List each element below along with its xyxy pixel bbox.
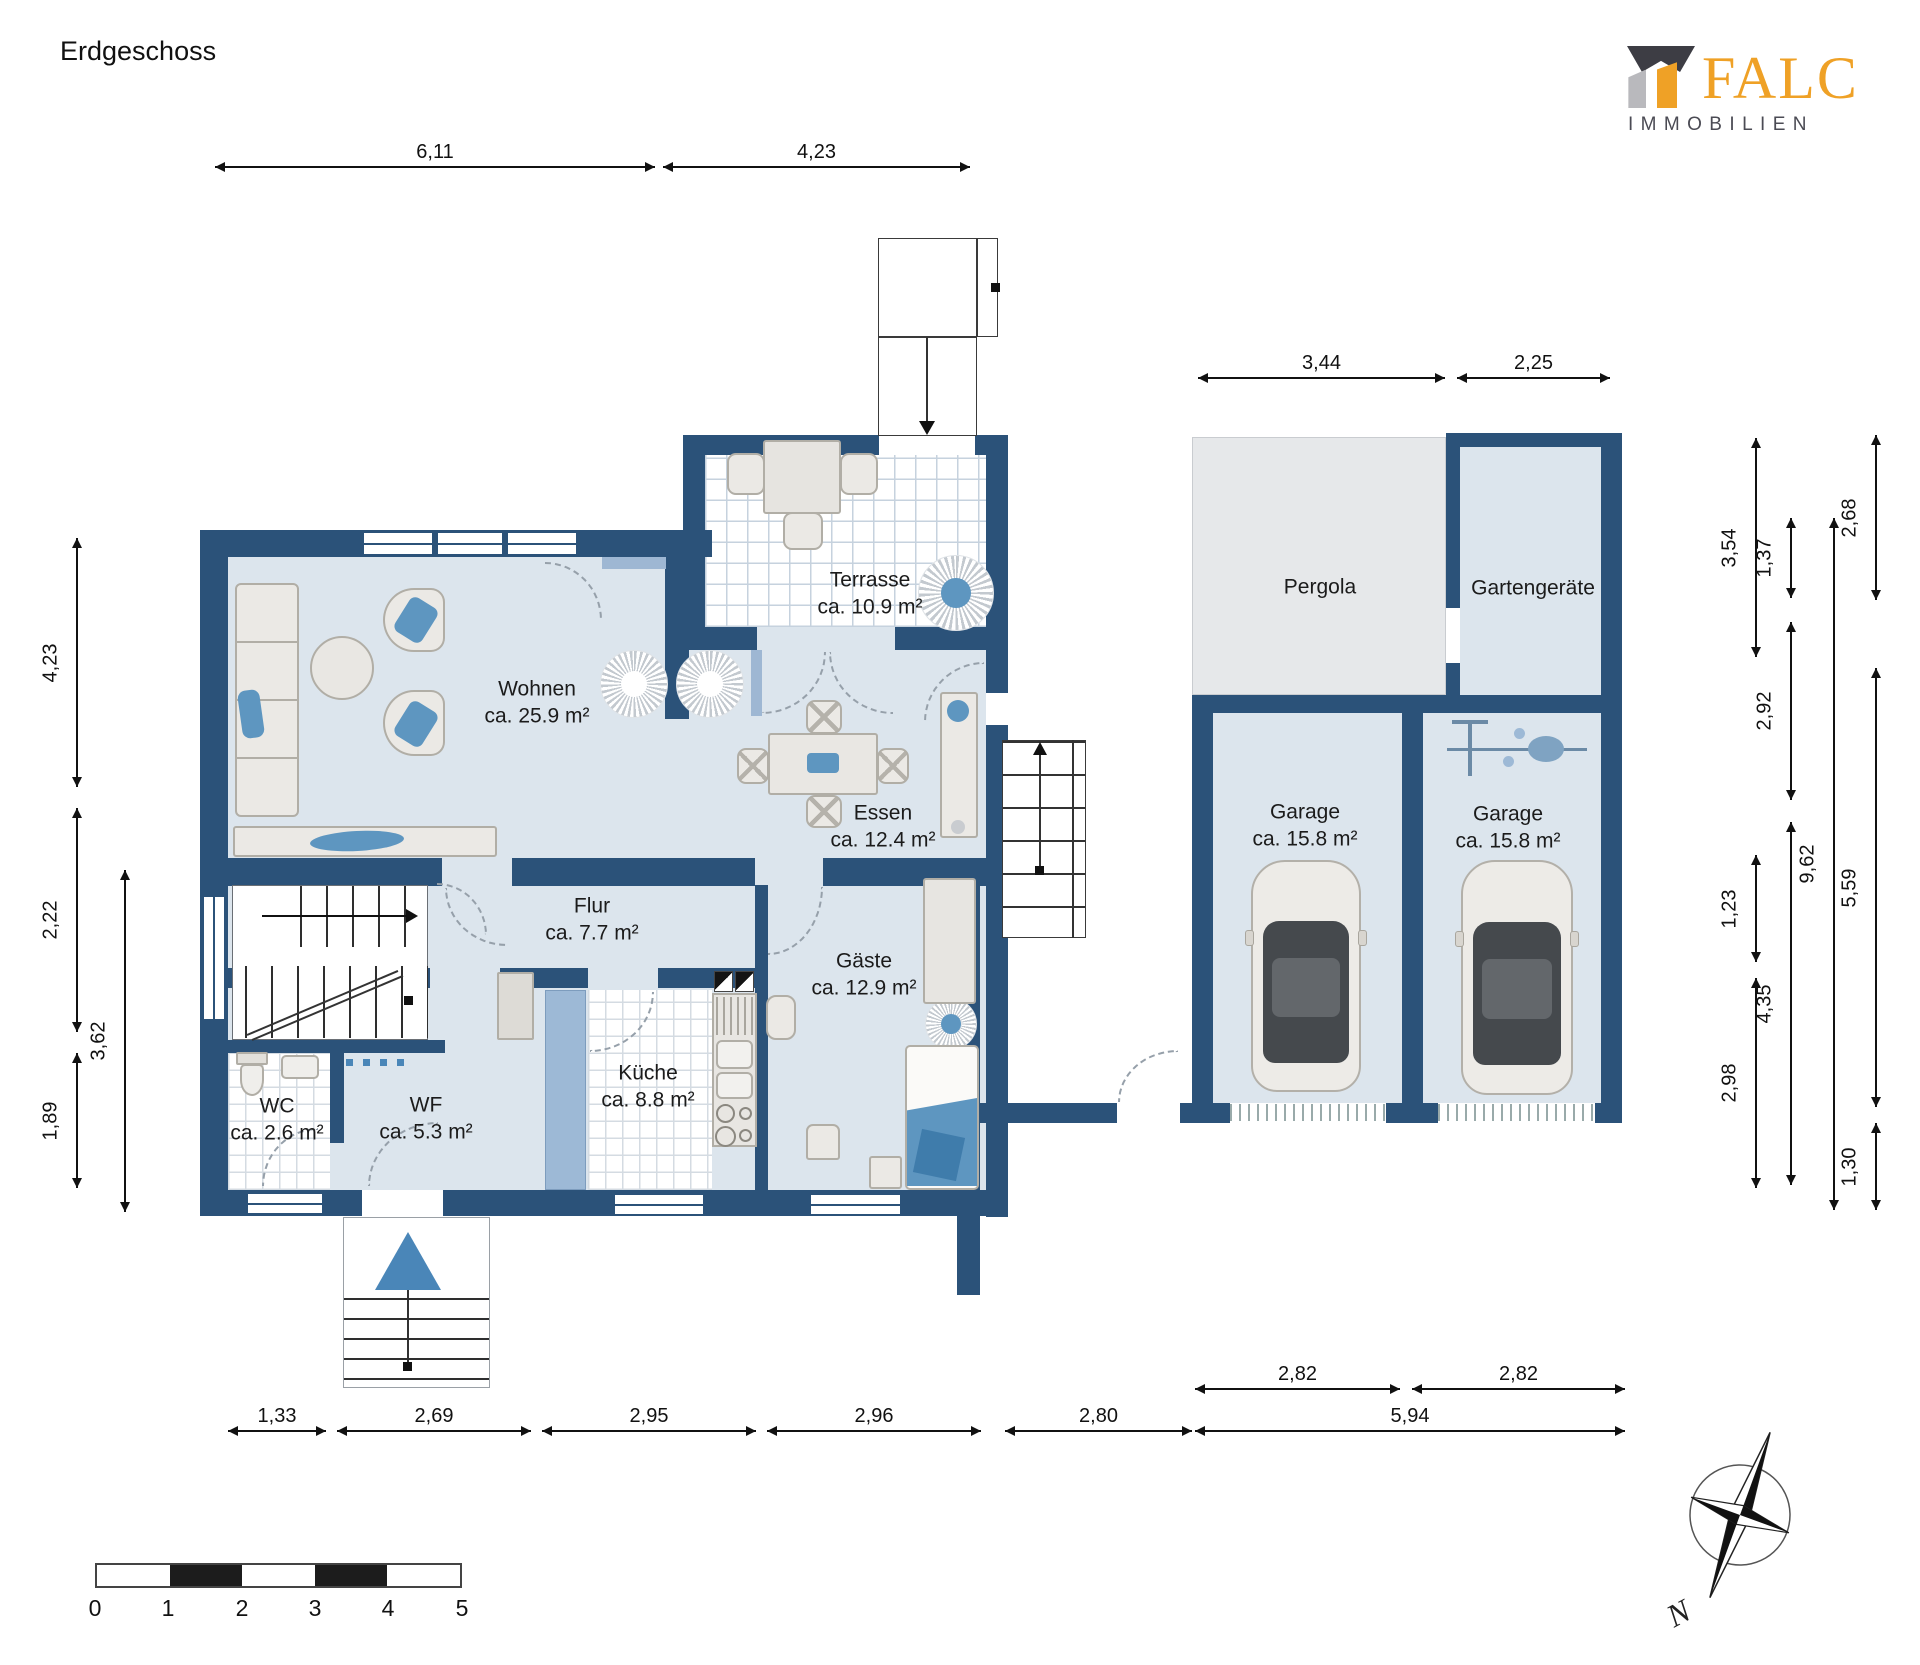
- dimension: 6,11: [215, 142, 655, 168]
- logo-gray-shape: [1628, 70, 1646, 108]
- dimension: 3,62: [100, 870, 130, 1212]
- stair-post-dot: [404, 996, 413, 1005]
- kitchen-symbol: [735, 971, 754, 992]
- wall: [986, 435, 1008, 693]
- room-area: ca. 7.7 m²: [545, 920, 638, 947]
- scale-tick: 3: [309, 1595, 322, 1622]
- dimension: 1,23: [1731, 855, 1761, 962]
- dimension: 2,69: [337, 1406, 531, 1432]
- wash-basin: [766, 995, 796, 1040]
- car: [1461, 860, 1573, 1095]
- room-label-garage2: Garage ca. 15.8 m²: [1455, 801, 1560, 856]
- wall: [200, 858, 442, 886]
- dimension: 1,30: [1851, 1123, 1881, 1210]
- dimension-label: 2,68: [1840, 498, 1860, 537]
- logo-orange-shape: [1657, 62, 1677, 108]
- dining-chair: [737, 748, 769, 784]
- garden-stairs-line: [1039, 752, 1041, 870]
- dimension-label: 1,30: [1840, 1147, 1860, 1186]
- garden-tool-knob: [1503, 756, 1514, 767]
- window: [613, 1193, 705, 1216]
- dimension-label: 4,23: [41, 643, 61, 682]
- kitchen-symbol: [714, 971, 733, 992]
- dimension: 2,96: [767, 1406, 981, 1432]
- sideboard-flower: [951, 820, 965, 834]
- dining-chair: [806, 700, 842, 734]
- garage1-door: [1230, 1104, 1386, 1121]
- terrace-table: [763, 440, 841, 514]
- wardrobe: [923, 878, 976, 1004]
- room-name: Gartengeräte: [1471, 574, 1595, 601]
- window: [809, 1193, 902, 1216]
- wall: [512, 858, 755, 886]
- room-area: ca. 15.8 m²: [1455, 828, 1560, 855]
- kitchen-sink: [716, 1072, 753, 1099]
- pergola-floor: [1192, 437, 1446, 695]
- side-table: [869, 1156, 902, 1189]
- room-name: Wohnen: [484, 676, 589, 703]
- dimension: 3,44: [1198, 353, 1445, 379]
- scale-tick: 4: [382, 1595, 395, 1622]
- dimension-label: 2,22: [41, 901, 61, 940]
- dimension: 2,68: [1851, 435, 1881, 600]
- dining-chair: [877, 748, 909, 784]
- wall: [1192, 695, 1213, 1123]
- desk-chair: [806, 1124, 840, 1160]
- room-name: Essen: [830, 800, 935, 827]
- built-in-cupboard: [545, 990, 586, 1190]
- scale-tick: 0: [89, 1595, 102, 1622]
- car-roof: [1482, 959, 1551, 1019]
- dimension-line: [1198, 377, 1445, 379]
- guest-room-plant: [925, 998, 977, 1050]
- dimension-label: 2,98: [1720, 1064, 1740, 1103]
- room-name: Terrasse: [817, 567, 922, 594]
- dimension-label: 5,59: [1840, 868, 1860, 907]
- garden-stairs-dot: [1035, 866, 1044, 875]
- room-area: ca. 5.3 m²: [379, 1119, 472, 1146]
- window: [362, 531, 434, 556]
- dimension-label: 1,37: [1755, 539, 1775, 578]
- dimension-label: 5,94: [1391, 1406, 1430, 1426]
- window: [436, 531, 504, 556]
- car-mirror: [1245, 930, 1254, 946]
- dimension-label: 6,11: [416, 142, 453, 162]
- car-roof: [1272, 958, 1340, 1017]
- dimension-label: 2,80: [1079, 1406, 1118, 1426]
- dimension: 1,37: [1766, 518, 1796, 598]
- garden-stairs-up-arrow: [1033, 742, 1047, 755]
- garden-stairs-rail: [1072, 740, 1074, 938]
- room-label-wohnen: Wohnen ca. 25.9 m²: [484, 676, 589, 731]
- stair-arrow: [406, 909, 418, 923]
- scale-tick: 2: [236, 1595, 249, 1622]
- dimension-label: 3,54: [1720, 528, 1740, 567]
- falc-logo-icon: [1627, 46, 1695, 108]
- dimension-line: [215, 166, 655, 168]
- room-area: ca. 10.9 m²: [817, 594, 922, 621]
- dimension-line: [228, 1430, 326, 1432]
- dimension-line: [1412, 1388, 1625, 1390]
- plant-core: [621, 671, 647, 697]
- page-title: Erdgeschoss: [60, 36, 216, 67]
- room-name: Flur: [545, 893, 638, 920]
- dimension-label: 1,23: [1720, 889, 1740, 928]
- wall: [1386, 1103, 1438, 1123]
- dimension-label: 2,96: [855, 1406, 894, 1426]
- room-name: Pergola: [1284, 573, 1356, 600]
- garden-tool-bar: [1468, 722, 1472, 776]
- dimension: 5,59: [1851, 668, 1881, 1107]
- room-label-pergola: Pergola: [1284, 573, 1356, 600]
- terrace-plant: [918, 555, 994, 631]
- stairs-post-dot: [991, 283, 1000, 292]
- stairs-direction-line: [926, 337, 928, 425]
- entrance-dot: [403, 1362, 412, 1371]
- hall-cabinet: [497, 972, 534, 1040]
- wall: [1402, 695, 1423, 1123]
- dimension: 1,89: [52, 1053, 82, 1188]
- kitchen-sink: [716, 1040, 753, 1069]
- scale-tick: 5: [456, 1595, 469, 1622]
- garden-tool-bar: [1452, 720, 1488, 724]
- room-area: ca. 12.4 m²: [830, 827, 935, 854]
- car: [1251, 860, 1361, 1092]
- dining-table-tray: [807, 753, 839, 773]
- dimension-label: 2,25: [1514, 353, 1553, 373]
- toilet-bowl: [240, 1064, 264, 1096]
- dimension-label: 2,82: [1278, 1364, 1317, 1384]
- stove-burner: [715, 1126, 736, 1147]
- room-name: WF: [379, 1092, 472, 1119]
- drainer: [716, 997, 754, 1035]
- wall: [665, 627, 757, 650]
- logo-subtitle: IMMOBILIEN: [1628, 114, 1814, 136]
- dimension: 4,23: [663, 142, 970, 168]
- dimension: 4,23: [52, 538, 82, 787]
- dimension-line: [337, 1430, 531, 1432]
- room-name: Küche: [601, 1060, 694, 1087]
- dimension-line: [542, 1430, 756, 1432]
- terrace-chair: [783, 512, 823, 550]
- dimension-line: [663, 166, 970, 168]
- stairs-down-arrow: [919, 421, 935, 435]
- dimension-label: 4,35: [1755, 984, 1775, 1023]
- car-mirror: [1570, 931, 1579, 947]
- terrace-chair: [727, 453, 765, 495]
- room-label-gartengeraete: Gartengeräte: [1471, 574, 1595, 601]
- wall: [443, 1190, 1008, 1216]
- room-label-garage1: Garage ca. 15.8 m²: [1252, 799, 1357, 854]
- sideboard-bowl: [947, 700, 969, 722]
- dimension-line: [1195, 1430, 1625, 1432]
- plant: [676, 650, 744, 718]
- room-area: ca. 12.9 m²: [811, 975, 916, 1002]
- stair-direction-line: [262, 915, 412, 917]
- room-label-kueche: Küche ca. 8.8 m²: [601, 1060, 694, 1115]
- wall: [980, 1103, 1117, 1123]
- garden-tool-knob: [1514, 728, 1525, 739]
- window: [506, 531, 578, 556]
- room-label-wf: WF ca. 5.3 m²: [379, 1092, 472, 1147]
- dimension: 2,95: [542, 1406, 756, 1432]
- dimension-label: 1,89: [41, 1101, 61, 1140]
- room-name: Gäste: [811, 948, 916, 975]
- dimension-label: 3,44: [1302, 353, 1341, 373]
- door-leaf: [602, 557, 666, 569]
- scale-tick: 1: [162, 1595, 175, 1622]
- garage2-door: [1438, 1104, 1595, 1121]
- garden-tool-head: [1528, 736, 1564, 762]
- dimension-label: 2,69: [415, 1406, 454, 1426]
- wall: [1446, 433, 1622, 447]
- plant-core: [941, 578, 971, 608]
- dimension: 4,35: [1766, 822, 1796, 1185]
- car-mirror: [1455, 931, 1464, 947]
- coffee-table: [310, 636, 374, 700]
- room-area: ca. 2.6 m²: [230, 1120, 323, 1147]
- stove-burner: [739, 1129, 752, 1142]
- dimension-label: 2,95: [630, 1406, 669, 1426]
- dimension: 2,82: [1412, 1364, 1625, 1390]
- scale-bar-strip: [95, 1563, 462, 1588]
- room-label-essen: Essen ca. 12.4 m²: [830, 800, 935, 855]
- dimension: 2,92: [1766, 622, 1796, 800]
- plant-core: [697, 671, 723, 697]
- room-name: Garage: [1252, 799, 1357, 826]
- plant: [600, 650, 668, 718]
- stove-burner: [716, 1104, 735, 1123]
- dimension: 2,80: [1005, 1406, 1192, 1432]
- dimension: 9,62: [1809, 518, 1839, 1210]
- dimension-line: [1457, 377, 1610, 379]
- room-area: ca. 25.9 m²: [484, 703, 589, 730]
- wall: [1601, 433, 1622, 1123]
- door-swing-arc: [1118, 1050, 1178, 1102]
- wall: [1192, 1103, 1230, 1123]
- exterior-stairs-landing: [878, 238, 977, 337]
- window: [246, 1192, 324, 1215]
- dimension: 2,25: [1457, 353, 1610, 379]
- dimension-label: 2,92: [1755, 692, 1775, 731]
- sink: [281, 1055, 319, 1079]
- wall: [330, 1053, 344, 1143]
- dimension-label: 3,62: [89, 1022, 109, 1061]
- room-label-flur: Flur ca. 7.7 m²: [545, 893, 638, 948]
- stove-burner: [739, 1107, 752, 1120]
- room-label-wc: WC ca. 2.6 m²: [230, 1093, 323, 1148]
- gartengeraete-floor: [1460, 447, 1601, 695]
- room-name: Garage: [1455, 801, 1560, 828]
- terrace-chair: [840, 453, 878, 495]
- coat-hooks: [346, 1059, 414, 1066]
- dimension: 1,33: [228, 1406, 326, 1432]
- room-name: WC: [230, 1093, 323, 1120]
- dimension-label: 2,82: [1499, 1364, 1538, 1384]
- room-label-terrasse: Terrasse ca. 10.9 m²: [817, 567, 922, 622]
- dimension: 2,22: [52, 808, 82, 1032]
- entrance-steps: [344, 1298, 489, 1386]
- room-area: ca. 8.8 m²: [601, 1087, 694, 1114]
- plant-core: [941, 1014, 961, 1034]
- wall: [895, 627, 988, 650]
- floorplan-page: Erdgeschoss FALC IMMOBILIEN: [0, 0, 1920, 1665]
- dimension: 5,94: [1195, 1406, 1625, 1432]
- wall: [1446, 433, 1460, 608]
- door-leaf: [751, 650, 762, 716]
- dimension-line: [767, 1430, 981, 1432]
- room-label-gaeste: Gäste ca. 12.9 m²: [811, 948, 916, 1003]
- dimension-line: [1195, 1388, 1400, 1390]
- dimension-label: 9,62: [1798, 845, 1818, 884]
- logo-wordmark: FALC: [1702, 44, 1859, 113]
- room-area: ca. 15.8 m²: [1252, 826, 1357, 853]
- car-mirror: [1358, 930, 1367, 946]
- dimension-line: [1005, 1430, 1192, 1432]
- dimension-label: 4,23: [797, 142, 836, 162]
- wall: [1595, 1103, 1622, 1123]
- window: [202, 895, 226, 1021]
- dimension: 2,82: [1195, 1364, 1400, 1390]
- bed-cushion: [913, 1129, 965, 1181]
- dimension-label: 1,33: [258, 1406, 297, 1426]
